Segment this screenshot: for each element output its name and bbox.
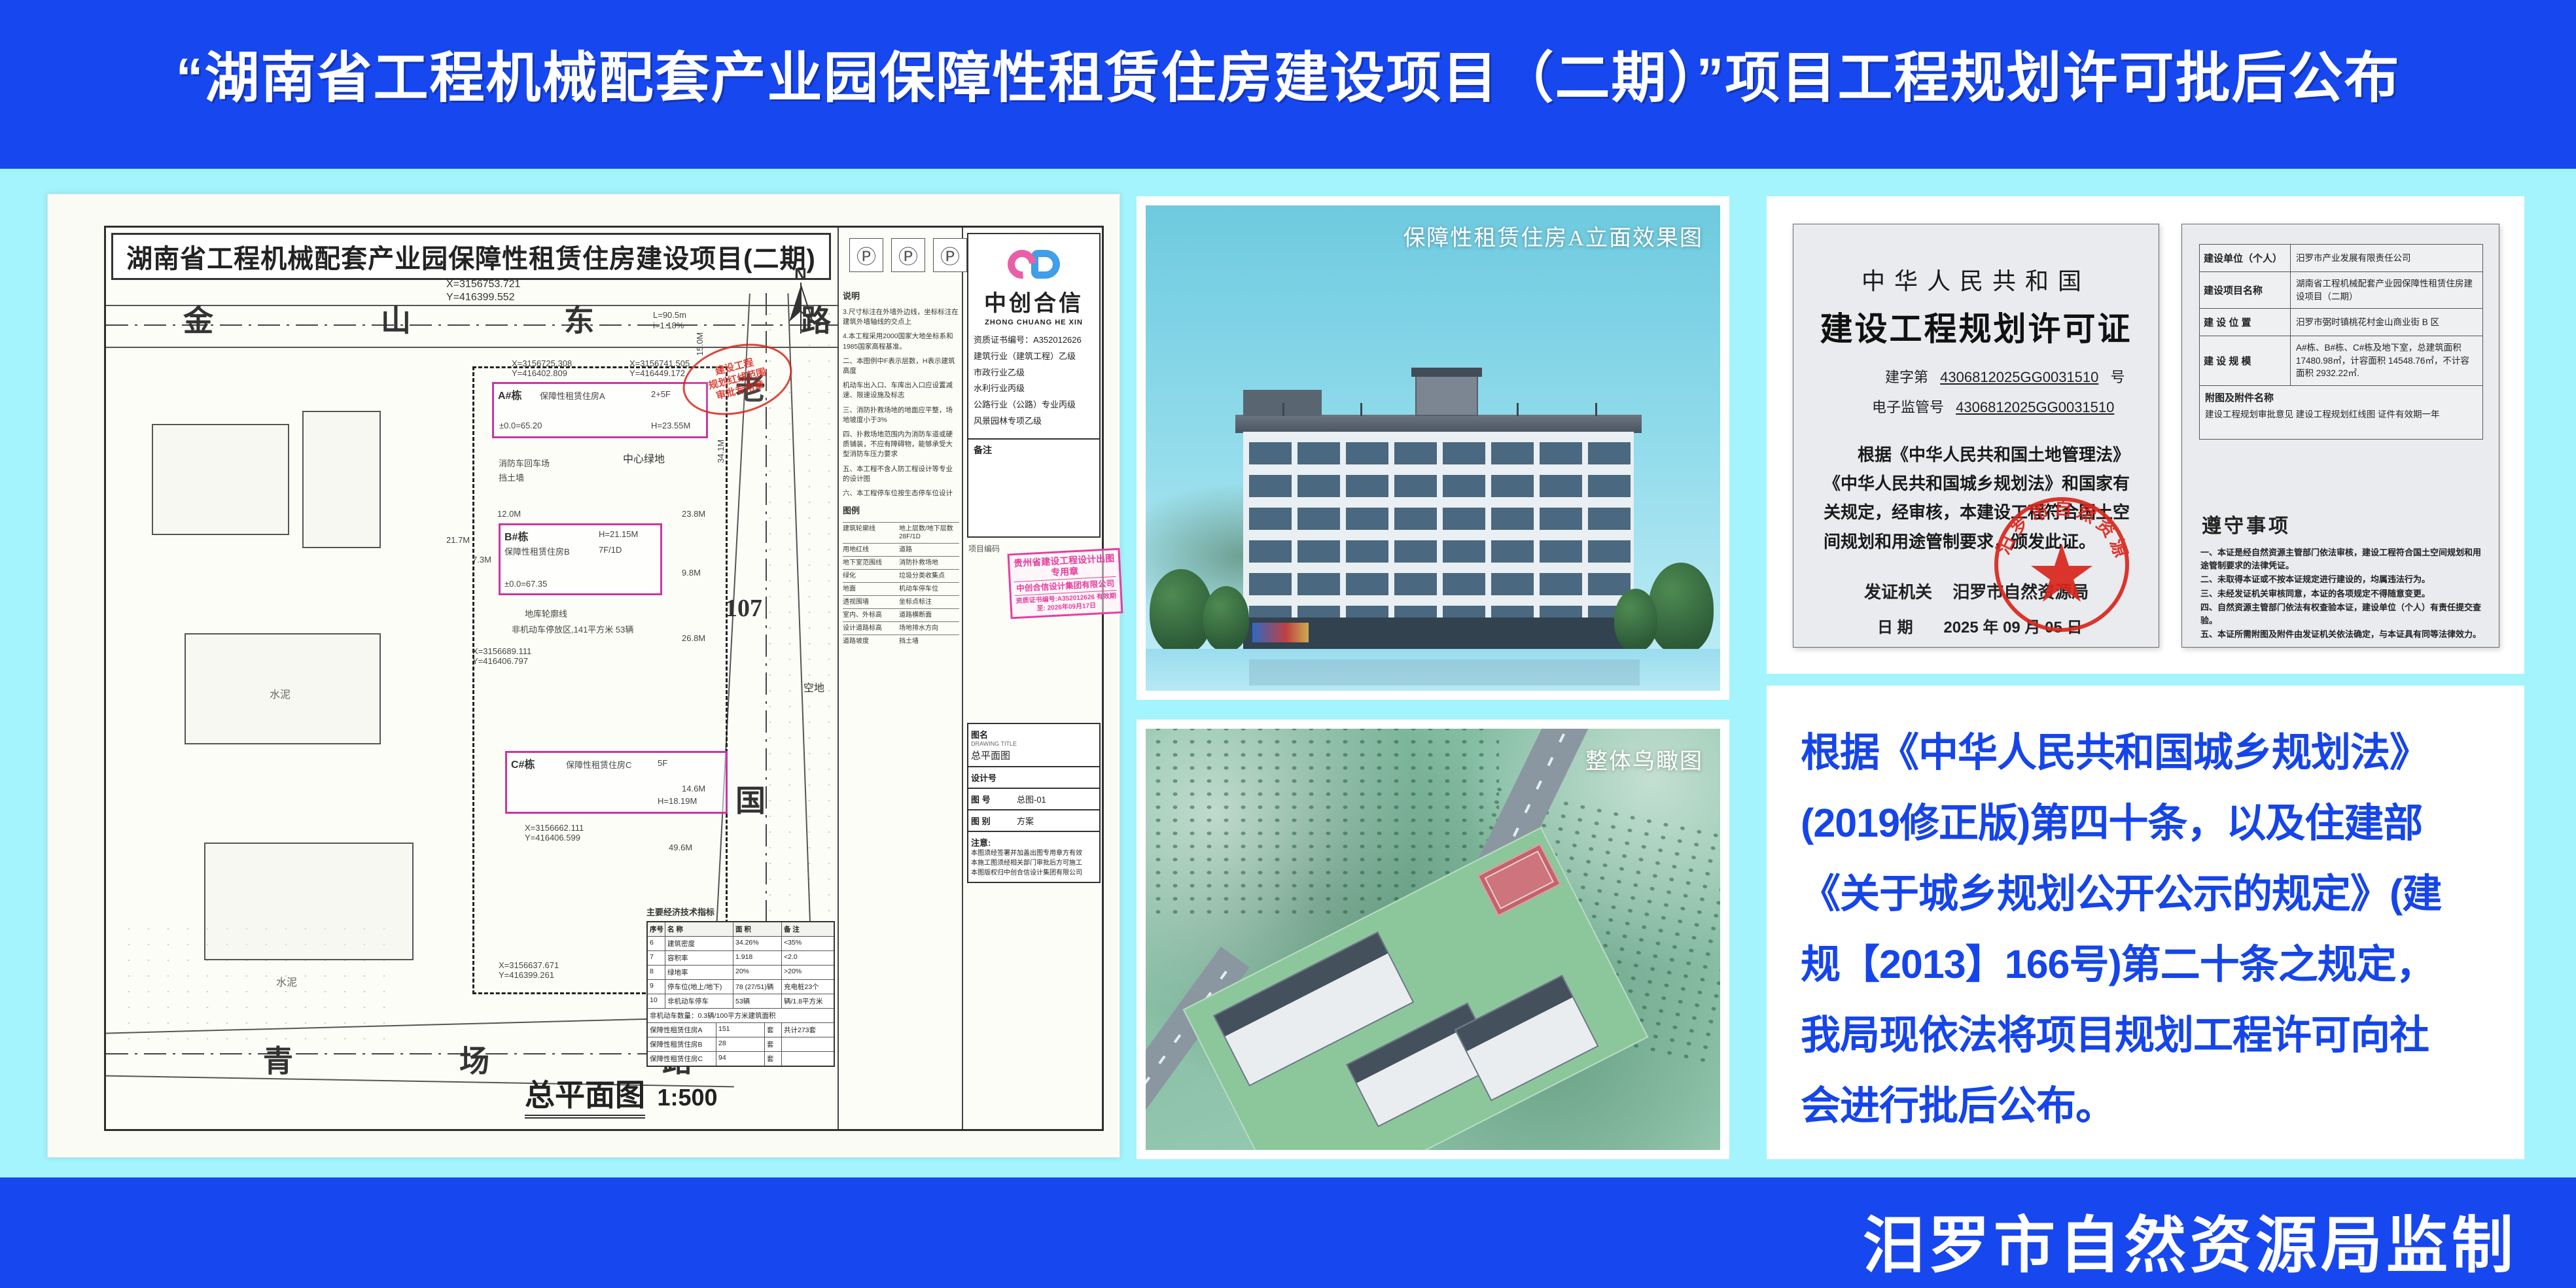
certificate-left-page: 中华人民共和国 建设工程规划许可证 建字第 4306812025GG003151… xyxy=(1793,224,2159,648)
cert-title: 建设工程规划许可证 xyxy=(1793,303,2159,350)
firm-qual: 市政行业乙级 xyxy=(974,366,1094,381)
legend-cell: 地面 xyxy=(843,585,899,593)
remark-box: 备注 xyxy=(967,440,1101,538)
field-key: 建设单位（个人） xyxy=(2200,245,2290,271)
cert-no-suffix: 号 xyxy=(2111,369,2125,385)
legend-title: 图例 xyxy=(843,505,959,517)
notice-line: (2019修正版)第四十条，以及住建部 xyxy=(1801,788,2441,858)
elevation-label: 保障性租赁住房A立面效果图 xyxy=(1403,220,1703,252)
building-a-use: 保障性租赁住房A xyxy=(540,389,605,402)
td: 34.26% xyxy=(733,937,781,950)
attach-value: 建设工程规划审批意见 建设工程规划红线图 证件有效期一年 xyxy=(2205,409,2440,419)
td: 套 xyxy=(764,1037,781,1051)
retain-label: 挡土墙 xyxy=(499,471,524,483)
rule-item: 三、未经发证机关审核同意，本证的各项规定不得随意变更。 xyxy=(2200,587,2483,600)
cdi-logo-icon xyxy=(974,250,1094,279)
tech-indicator-table: 序号 名 称 面 积 备 注 6建筑密度34.26%<35% 7容积率1.918… xyxy=(646,921,835,1067)
drawing-title-block: 图名 DRAWING TITLE 总平面图 设计号 图 号总图-01 图 别方案… xyxy=(967,723,1101,883)
building-a: A#栋 保障性租赁住房A 2+5F ±0.0=65.20 H=23.55M xyxy=(492,382,708,438)
roof xyxy=(1235,415,1642,433)
td: 套 xyxy=(764,1052,781,1066)
dim-label: 7.3M xyxy=(472,555,491,565)
tree xyxy=(1614,589,1657,652)
drawing-scale-text: 1:500 xyxy=(657,1084,717,1111)
road-name-char: 山 xyxy=(381,297,411,340)
legend-row: 设计道路标高场地排水方向 xyxy=(843,621,959,635)
notice-line: 会进行批后公布。 xyxy=(1801,1070,2441,1141)
dim-label: 49.6M xyxy=(669,843,692,852)
td: 保障性租赁住房B xyxy=(648,1037,716,1051)
roof-finial xyxy=(1360,403,1362,416)
coord-label: Y=416399.261 xyxy=(499,970,554,980)
aerial-render-card: 整体鸟瞰图 xyxy=(1137,720,1729,1159)
attach-label: 附图及附件名称 xyxy=(2205,391,2440,406)
legend-row: 绿化垃圾分类收集点 xyxy=(843,569,959,582)
parking-label: 非机动车停放区,141平方米 53辆 xyxy=(512,623,633,635)
legend-cell: 绿化 xyxy=(843,572,899,580)
firm-qual: 水利行业丙级 xyxy=(974,381,1094,396)
cert-ereg-value: 4306812025GG0031510 xyxy=(1956,399,2114,415)
page-title: “湖南省工程机械配套产业园保障性租赁住房建设项目（二期）”项目工程规划许可批后公… xyxy=(0,34,2576,113)
firm-qual: 风景园林专项乙级 xyxy=(974,414,1094,429)
parking-symbol: Ⓟ xyxy=(933,238,967,272)
notice-line: 规【2013】166号)第二十条之规定， xyxy=(1801,929,2441,1000)
legend-cell: 透视围墙 xyxy=(843,599,899,606)
note: 3.尺寸标注在外墙外边线，坐标标注在建筑外墙轴线的交点上 xyxy=(843,307,959,327)
building-b-tag: B#栋 xyxy=(504,528,528,544)
coord-label: X=3156725.308 xyxy=(512,358,572,368)
frame-divider-firm xyxy=(962,228,963,1129)
tower-roof xyxy=(1411,368,1482,377)
tb-label-en: DRAWING TITLE xyxy=(971,740,1017,747)
firm-qual: 公路行业（公路）专业丙级 xyxy=(974,398,1094,413)
td: 辆/1.8平方米 xyxy=(781,994,834,1008)
svg-text:N: N xyxy=(794,266,807,284)
building-b-datum: ±0.0=67.35 xyxy=(504,579,547,589)
green-label: 中心绿地 xyxy=(623,450,665,466)
td: 9 xyxy=(648,980,665,994)
material-label: 水泥 xyxy=(276,973,297,989)
elevation-render-card: 保障性租赁住房A立面效果图 xyxy=(1137,196,1729,700)
aerial-label: 整体鸟瞰图 xyxy=(1585,743,1703,775)
dim-label: 26.8M xyxy=(682,633,705,643)
field-key: 建 设 规 模 xyxy=(2200,336,2290,385)
legend-cell: 消防扑救场地 xyxy=(899,559,938,567)
legend-cell: 室内、外标高 xyxy=(843,612,899,619)
note: 五、本工程不含人防工程设计等专业的设计图 xyxy=(843,464,959,484)
td: 绿地率 xyxy=(665,966,733,979)
building-c-height: H=18.19M xyxy=(658,796,697,806)
coord-label: X=3156662.111 xyxy=(525,823,584,833)
tree xyxy=(1150,569,1212,654)
tb-value: 总图-01 xyxy=(1017,793,1046,805)
rule-item: 一、本证是经自然资源主管部门依法审核，建设工程符合国土空间规划和用途管制要求的法… xyxy=(2200,546,2483,572)
legend-cell: 建筑轮廓线 xyxy=(843,525,899,541)
td: 28 xyxy=(716,1037,764,1051)
road-name-char: 东 xyxy=(564,297,594,340)
road-name-char: 青 xyxy=(263,1037,293,1081)
tech-table-title: 主要经济技术指标 xyxy=(646,905,715,918)
notice-line: 《关于城乡规划公开公示的规定》(建 xyxy=(1801,858,2441,929)
building-a-datum: ±0.0=65.20 xyxy=(499,421,542,430)
tb-notice-label: 注意: xyxy=(971,836,991,848)
field-value: 汨罗市弼时镇桃花村金山商业街 B 区 xyxy=(2290,309,2482,336)
note: 机动车出入口、车库出入口应设置减速、限速设施及标志 xyxy=(843,381,959,400)
td: 8 xyxy=(648,966,665,979)
field-value: A#栋、B#栋、C#栋及地下室，总建筑面积 17480.98㎡，计容面积 145… xyxy=(2290,336,2482,385)
legend-cell: 地下室范围线 xyxy=(843,559,899,567)
tb-label: 图名 xyxy=(971,728,988,740)
td: 6 xyxy=(648,937,665,950)
stamp-line: 贵州省建设工程设计出图专用章 xyxy=(1013,553,1116,580)
housing-total: 共计273套 xyxy=(781,1023,834,1037)
legal-notice-card: 根据《中华人民共和国城乡规划法》 (2019修正版)第四十条，以及住建部 《关于… xyxy=(1767,686,2524,1159)
legend-cell: 场地排水方向 xyxy=(899,625,938,633)
notice-line: 根据《中华人民共和国城乡规划法》 xyxy=(1801,717,2441,788)
firm-name-en: ZHONG CHUANG HE XIN xyxy=(974,319,1094,326)
td: 保障性租赁住房C xyxy=(648,1052,716,1066)
td: 53辆 xyxy=(733,994,781,1008)
th: 备 注 xyxy=(781,922,834,936)
building-c: C#栋 保障性租赁住房C 5F H=18.19M xyxy=(505,751,728,814)
rule-item: 五、本证所需附图及附件由发证机关依法确定，与本证具有同等法律效力。 xyxy=(2200,628,2483,641)
td: 非机动车停车 xyxy=(665,994,733,1008)
building-c-tag: C#栋 xyxy=(511,756,535,771)
legend-row: 室内、外标高道路横断面 xyxy=(843,608,959,621)
building-reflection xyxy=(1249,659,1640,686)
rules-list: 一、本证是经自然资源主管部门依法审核，建设工程符合国土空间规划和用途管制要求的法… xyxy=(2200,546,2483,642)
rules-title: 遵守事项 xyxy=(2202,510,2291,538)
legend-cell: 道路 xyxy=(899,546,912,554)
coord-label: X=3156637.671 xyxy=(499,960,559,970)
notes-title: 说明 xyxy=(843,290,959,303)
coord-label: Y=416399.552 xyxy=(446,292,515,304)
td: 停车位(地上/地下) xyxy=(665,980,733,994)
dim-label: 15.0M xyxy=(695,332,705,356)
building-b-height: H=21.15M xyxy=(599,529,638,539)
parking-symbol: Ⓟ xyxy=(891,238,925,272)
legend-cell: 坐标点标注 xyxy=(899,599,932,606)
td: 78 (27/51)辆 xyxy=(733,980,781,994)
td: 充电桩23个 xyxy=(781,980,834,994)
north-arrow-icon: N xyxy=(780,266,822,338)
coord-label: Y=416406.797 xyxy=(472,656,528,666)
vacant-label: 空地 xyxy=(803,679,824,695)
th: 序号 xyxy=(648,922,665,936)
plan-sheet-title: 湖南省工程机械配套产业园保障性租赁住房建设项目(二期) xyxy=(111,233,831,280)
building-a-tag: A#栋 xyxy=(498,387,521,402)
cert-fields-table: 建设单位（个人）汨罗市产业发展有限责任公司 建设项目名称湖南省工程机械配套产业园… xyxy=(2199,244,2483,440)
dim-label: 12.0M xyxy=(497,509,521,519)
building-a-floors: 2+5F xyxy=(651,389,671,399)
parking-symbol: Ⓟ xyxy=(849,238,883,272)
td: >20% xyxy=(781,966,834,979)
th: 面 积 xyxy=(733,922,781,936)
site-plan-frame: 湖南省工程机械配套产业园保障性租赁住房建设项目(二期) Ⓟ Ⓟ Ⓟ 金 山 东 … xyxy=(104,226,1104,1131)
cert-ereg-line: 电子监管号 4306812025GG0031510 xyxy=(1872,396,2114,417)
design-institute-stamp: 贵州省建设工程设计出图专用章 中创合信设计集团有限公司 资质证书编号:A3520… xyxy=(1008,548,1123,619)
roof-finial xyxy=(1517,403,1519,416)
tech-note: 非机动车数量：0.3辆/100平方米建筑面积 xyxy=(648,1009,834,1022)
td xyxy=(781,1037,834,1051)
frame-divider-notes xyxy=(838,228,839,1129)
legend-cell: 道路坡度 xyxy=(843,638,899,646)
cert-no-prefix: 建字第 xyxy=(1885,369,1928,385)
tb-notice: 本图版权归中创合信设计集团有限公司 xyxy=(971,868,1082,878)
legend-cell: 用地红线 xyxy=(843,546,899,554)
dim-label: L=90.5m xyxy=(653,310,686,320)
td: 套 xyxy=(764,1023,781,1037)
road-edge xyxy=(106,305,838,306)
firm-qual: 建筑行业（建筑工程）乙级 xyxy=(974,349,1094,364)
building-a-height: H=23.55M xyxy=(651,421,690,430)
firm-name: 中创合信 xyxy=(974,285,1094,317)
issuing-authority-credit: 汨罗市自然资源局监制 xyxy=(1863,1196,2517,1285)
coord-label: X=3156689.111 xyxy=(472,646,531,656)
existing-building xyxy=(302,411,381,548)
cert-number-line: 建字第 4306812025GG0031510 号 xyxy=(1885,366,2125,387)
legend-row: 道路坡度挡土墙 xyxy=(843,635,959,648)
coord-label: Y=416449.172 xyxy=(629,368,685,378)
tb-value: 方案 xyxy=(1017,814,1034,827)
cert-date-label: 日 期 xyxy=(1877,619,1913,636)
td: 容积率 xyxy=(665,951,733,965)
storefront-screen xyxy=(1252,623,1309,642)
legend-cell: 地上层数/地下层数 28F/1D xyxy=(899,525,959,541)
legend-row: 地面机动车停车位 xyxy=(843,582,959,595)
tree xyxy=(1648,563,1714,654)
dim-label: 21.7M xyxy=(446,535,470,545)
existing-building xyxy=(204,843,414,960)
elevation-render-image: 保障性租赁住房A立面效果图 xyxy=(1146,205,1720,691)
field-value: 汨罗市产业发展有限责任公司 xyxy=(2290,245,2482,271)
building-c-floors: 5F xyxy=(658,758,667,768)
tb-label: 图 别 xyxy=(971,814,1017,827)
aerial-render-image: 整体鸟瞰图 xyxy=(1146,729,1720,1150)
tb-label: 设计号 xyxy=(971,771,1017,784)
td: 1.918 xyxy=(733,951,781,965)
garage-label: 地库轮廓线 xyxy=(525,607,567,619)
legend-row: 透视围墙坐标点标注 xyxy=(843,595,959,608)
road-name-char: 国 xyxy=(735,777,766,820)
coord-label: Y=416402.809 xyxy=(512,368,567,378)
drawing-title-text: 总平面图 xyxy=(525,1078,645,1119)
plan-notes-column: 说明 3.尺寸标注在外墙外边线，坐标标注在建筑外墙轴线的交点上 4.本工程采用2… xyxy=(843,290,959,648)
road-name-char: 场 xyxy=(459,1037,489,1081)
note: 四、扑救场地范围内为消防车道或硬质铺装，不应有障碍物，能够承受大型消防车压力要求 xyxy=(843,430,959,460)
note: 三、消防扑救场地的地面应平整，场地坡度小于3% xyxy=(843,406,959,425)
cert-issuer-label: 发证机关 xyxy=(1864,582,1932,602)
note: 4.本工程采用2000国家大地坐标系和1985国家高程基准。 xyxy=(843,332,959,351)
building-b-floors: 7F/1D xyxy=(599,545,622,555)
tb-notice: 本施工图须经相关部门审批后方可施工 xyxy=(971,858,1082,868)
td: <35% xyxy=(781,937,834,950)
legend-cell: 垃圾分类收集点 xyxy=(899,572,945,580)
dim-label: 14.6M xyxy=(682,784,705,793)
site-plan-sheet: 湖南省工程机械配套产业园保障性租赁住房建设项目(二期) Ⓟ Ⓟ Ⓟ 金 山 东 … xyxy=(47,194,1120,1158)
td: 94 xyxy=(716,1052,764,1066)
notice-board: “湖南省工程机械配套产业园保障性租赁住房建设项目（二期）”项目工程规划许可批后公… xyxy=(0,0,2576,1288)
roof-finial xyxy=(1282,403,1284,416)
content-panel: 湖南省工程机械配套产业园保障性租赁住房建设项目(二期) Ⓟ Ⓟ Ⓟ 金 山 东 … xyxy=(0,169,2576,1177)
coord-label: X=3156741.505 xyxy=(629,358,690,368)
legend-cell: 设计道路标高 xyxy=(843,625,899,633)
td xyxy=(781,1052,834,1066)
td: 建筑密度 xyxy=(665,937,733,950)
facade-columns xyxy=(1243,432,1634,649)
road-centerline xyxy=(106,324,838,326)
coord-label: X=3156753.721 xyxy=(446,279,520,290)
firm-cert: 资质证书编号：A352012626 xyxy=(974,333,1094,348)
tb-value: 总平面图 xyxy=(971,748,1010,762)
existing-building xyxy=(152,424,289,535)
cert-ereg-label: 电子监管号 xyxy=(1872,399,1944,415)
legend-row: 地下室范围线消防扑救场地 xyxy=(843,556,959,569)
roof-finial xyxy=(1595,403,1597,416)
rule-item: 二、未取得本证或不按本证规定进行建设的，均属违法行为。 xyxy=(2200,573,2483,586)
notice-line: 我局现依法将项目规划工程许可向社 xyxy=(1801,1000,2441,1070)
fire-label: 消防车回车场 xyxy=(499,457,550,469)
td: 20% xyxy=(733,966,781,979)
coord-label: Y=416406.599 xyxy=(525,833,580,843)
building-elevation xyxy=(1243,432,1634,649)
dim-label: 9.8M xyxy=(682,568,701,578)
material-label: 水泥 xyxy=(270,686,291,701)
certificate-right-page: 建设单位（个人）汨罗市产业发展有限责任公司 建设项目名称湖南省工程机械配套产业园… xyxy=(2181,224,2499,648)
road-name-char: 金 xyxy=(183,297,213,340)
td: 7 xyxy=(648,951,665,965)
drawing-scale-label: 总平面图 1:500 xyxy=(525,1071,718,1115)
td: <2.0 xyxy=(781,951,834,965)
permit-certificate-photo: 中华人民共和国 建设工程规划许可证 建字第 4306812025GG003151… xyxy=(1767,196,2524,674)
road-centerline xyxy=(106,1053,734,1054)
legal-notice-text: 根据《中华人民共和国城乡规划法》 (2019修正版)第四十条，以及住建部 《关于… xyxy=(1801,717,2441,1141)
building-c-use: 保障性租赁住房C xyxy=(566,758,631,771)
td: 10 xyxy=(648,994,665,1008)
field-value: 湖南省工程机械配套产业园保障性租赁住房建设项目（二期） xyxy=(2290,272,2482,308)
stamp-line: 资质证书编号:A352012626 有效期至: 2026年09月17日 xyxy=(1015,590,1118,614)
road-name-char: 107 xyxy=(725,594,762,623)
note: 六、本工程停车位按生态停车位设计 xyxy=(843,489,959,498)
field-key: 建 设 位 置 xyxy=(2200,309,2290,336)
th: 名 称 xyxy=(665,922,733,936)
legend-cell: 道路横断面 xyxy=(899,612,932,619)
roof-tower xyxy=(1415,375,1478,416)
dim-label: 23.8M xyxy=(682,509,705,519)
tb-label: 图 号 xyxy=(971,793,1017,805)
legend-cell: 挡土墙 xyxy=(899,638,919,646)
title-band: “湖南省工程机械配套产业园保障性租赁住房建设项目（二期）”项目工程规划许可批后公… xyxy=(0,0,2576,169)
water-reflection xyxy=(1146,649,1720,691)
cert-no-value: 4306812025GG0031510 xyxy=(1940,369,2098,385)
dim-label: i=1.18% xyxy=(653,321,684,330)
td: 151 xyxy=(716,1023,764,1037)
rule-item: 四、自然资源主管部门依法有权查验本证，建设单位（个人）有责任提交查验。 xyxy=(2200,601,2483,627)
cert-country: 中华人民共和国 xyxy=(1793,262,2159,296)
tb-notice: 本图须经签署并加盖出图专用章方有效 xyxy=(971,848,1082,858)
footer-band: 汨罗市自然资源局监制 xyxy=(0,1177,2576,1288)
seal-star xyxy=(2031,544,2092,602)
official-red-seal: 汨罗市自然资源局 xyxy=(1990,493,2134,636)
td: 保障性租赁住房A xyxy=(648,1023,716,1037)
field-key: 建设项目名称 xyxy=(2200,272,2290,308)
legend-cell: 机动车停车位 xyxy=(899,585,938,593)
legend-row: 用地红线道路 xyxy=(843,543,959,556)
legend-row: 建筑轮廓线地上层数/地下层数 28F/1D xyxy=(843,522,959,543)
building-b-use: 保障性租赁住房B xyxy=(504,545,570,557)
note: 二、本图例中F表示层数，H表示建筑高度 xyxy=(843,357,959,376)
tree xyxy=(1203,586,1249,652)
building-b: B#栋 保障性租赁住房B 7F/1D H=21.15M ±0.0=67.35 xyxy=(499,523,662,595)
cert-attachments: 附图及附件名称 建设工程规划审批意见 建设工程规划红线图 证件有效期一年 xyxy=(2200,386,2445,439)
firm-box: 中创合信 ZHONG CHUANG HE XIN 资质证书编号：A3520126… xyxy=(967,233,1101,440)
